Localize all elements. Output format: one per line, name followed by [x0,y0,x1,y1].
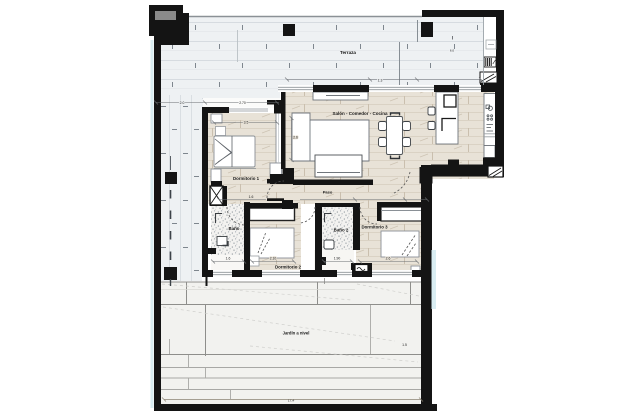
svg-text:2.6: 2.6 [293,136,298,140]
svg-text:1.6: 1.6 [249,195,254,199]
svg-text:Baño: Baño [229,226,240,231]
svg-text:2.0: 2.0 [180,101,185,105]
svg-text:Salón - Comedor - Cocina: Salón - Comedor - Cocina [332,111,388,116]
svg-text:3.5: 3.5 [244,121,249,125]
svg-text:Paso: Paso [323,190,333,195]
svg-text:1.5: 1.5 [402,343,407,347]
svg-text:Dormitorio 2: Dormitorio 2 [275,265,302,270]
svg-text:6.0: 6.0 [450,49,455,53]
svg-text:2.70: 2.70 [239,101,246,105]
svg-text:1.90: 1.90 [334,257,341,261]
svg-text:17,4: 17,4 [288,399,295,403]
svg-text:1.6: 1.6 [226,257,231,261]
svg-text:Dormitorio 1: Dormitorio 1 [233,176,260,181]
svg-text:Terraza: Terraza [340,50,356,55]
svg-text:Dormitorio 3: Dormitorio 3 [361,225,388,230]
svg-text:2.6: 2.6 [386,257,391,261]
svg-text:Jardín a nivel: Jardín a nivel [283,331,310,336]
svg-text:1.3: 1.3 [378,78,383,82]
svg-text:2.10: 2.10 [270,257,277,261]
svg-text:Baño 2: Baño 2 [334,228,349,233]
